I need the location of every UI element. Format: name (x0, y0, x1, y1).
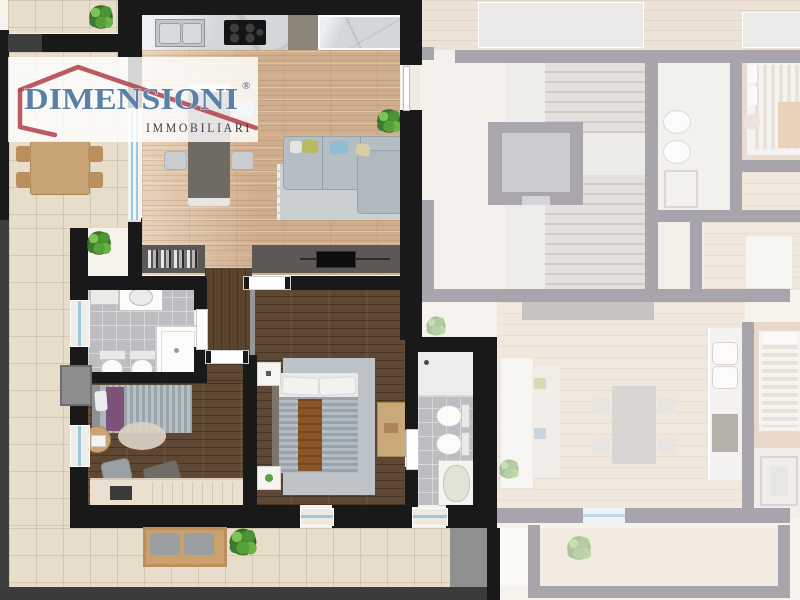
wall-segment (118, 0, 422, 15)
bed-pillow (94, 391, 107, 412)
faded-wall-segment (422, 47, 434, 60)
bookshelf (142, 245, 205, 273)
faded-potted-plant (497, 457, 521, 481)
faded-dining-table (612, 386, 656, 464)
elevator-door (522, 196, 550, 205)
master-desk (377, 402, 407, 457)
faded-toilet (663, 110, 691, 134)
faded-cushion (534, 428, 546, 439)
brand-name: DIMENSIONI (24, 81, 238, 116)
book (91, 435, 106, 447)
brand-subtitle: IMMOBILIARI (146, 120, 252, 135)
nightstand-decor (266, 371, 271, 376)
desk-object (384, 423, 398, 433)
window (70, 425, 90, 467)
sink-basin (159, 23, 181, 44)
toilet-tank (461, 404, 470, 428)
faded-wall-segment (455, 50, 800, 63)
bedroom1-floor (205, 364, 243, 383)
laptop (110, 486, 132, 500)
floor-plan-canvas: DIMENSIONI ® IMMOBILIARI (0, 0, 800, 600)
terrace-chair (88, 172, 103, 188)
bench-cushion (184, 533, 214, 555)
wall-segment (128, 218, 142, 285)
elevator-cab (502, 133, 570, 192)
faded-shower (664, 170, 698, 208)
dining-chair (164, 151, 187, 170)
bed-pillow (282, 376, 320, 396)
kitchen-counter-right (318, 15, 404, 50)
bidet-back (461, 432, 470, 456)
terrace-chair (88, 146, 103, 162)
door (406, 429, 419, 470)
wall-segment (446, 505, 497, 528)
books (148, 250, 198, 268)
faded-shower-br (760, 456, 798, 506)
bathtub-basin (443, 465, 470, 502)
brand-logo: DIMENSIONI ® IMMOBILIARI (8, 57, 258, 142)
wall-segment (405, 352, 418, 430)
faded-bed-tr-pillow (748, 65, 757, 83)
toilet (436, 404, 468, 426)
door-jamb (244, 277, 249, 289)
potted-plant (84, 228, 114, 258)
desk-dresser (90, 478, 243, 507)
bed-throw-brown (298, 399, 322, 471)
faded-potted-plant (424, 314, 448, 338)
faded-chair (593, 398, 610, 413)
window (412, 508, 448, 526)
gray-service-block (450, 528, 487, 587)
faded-desk-tr (778, 102, 800, 148)
faded-chair (658, 438, 675, 453)
faded-wall-segment (742, 322, 754, 520)
faded-potted-plant (564, 533, 594, 563)
door (196, 309, 208, 350)
wall-segment (473, 337, 497, 528)
terrace-table (30, 141, 90, 195)
terrace-chair (16, 146, 31, 162)
wall-segment (88, 372, 206, 383)
faded-wall-segment (497, 508, 583, 523)
wall-segment (405, 467, 418, 507)
bathroom2-washer-zone (418, 352, 473, 397)
faded-kitchen-sink (712, 366, 738, 389)
sofa-cushion (290, 141, 302, 153)
tv-screen (316, 251, 356, 268)
faded-tv-unit (522, 302, 654, 320)
nightstand (257, 362, 281, 386)
toilet-bowl (436, 405, 462, 427)
faded-window (583, 508, 625, 523)
potted-plant (226, 525, 260, 559)
bench-cushion (150, 533, 180, 555)
registered-mark: ® (242, 80, 250, 92)
faded-wall-segment (422, 200, 434, 290)
door-jamb (285, 277, 290, 289)
shower-drain (174, 348, 179, 353)
sink-basin (182, 23, 202, 44)
door (243, 276, 291, 290)
faded-chair (593, 438, 610, 453)
faded-bed-br (758, 330, 800, 432)
faded-bed-br-pillow (762, 333, 798, 344)
faded-wall-segment (690, 222, 702, 290)
wall-segment (400, 0, 422, 65)
dining-chair (231, 151, 254, 170)
wall-segment (243, 355, 257, 505)
outer-wall (8, 34, 42, 52)
faded-wall-segment (658, 210, 800, 222)
faded-bed-tr-pillow (748, 87, 757, 105)
faded-stool (744, 114, 760, 130)
shutter-box (60, 365, 92, 406)
sofa-cushion (329, 140, 348, 155)
terrace-chair (16, 172, 31, 188)
nightstand (257, 466, 281, 490)
bidet (436, 432, 468, 454)
wall-segment (88, 276, 206, 290)
terrace-bench (143, 527, 227, 567)
faded-chair (658, 398, 675, 413)
entry-door (402, 65, 420, 110)
faded-terrace-wall (528, 586, 790, 598)
bathtub (438, 460, 474, 506)
faded-wall-segment (742, 160, 800, 172)
wall-segment (487, 528, 500, 600)
sofa-cushion (301, 139, 319, 154)
faded-kitchen-sink (712, 342, 738, 365)
bed-pillow (319, 376, 357, 396)
door-leaf (403, 66, 410, 111)
faded-wardrobe-tr (742, 12, 800, 48)
door-jamb (206, 351, 211, 363)
radiator-lines (152, 482, 240, 504)
faded-cooktop (712, 414, 738, 452)
door (205, 350, 249, 364)
nightstand-plant (265, 474, 273, 482)
bed-headboard (272, 373, 279, 473)
faded-wall-segment (730, 63, 742, 213)
faded-bidet (663, 140, 691, 164)
outer-wall (0, 220, 9, 587)
drain-dot (424, 360, 429, 365)
partition-wall (250, 288, 255, 355)
faded-furniture-blob (745, 235, 793, 289)
faded-wall-segment (422, 289, 790, 302)
faded-bed-br-blanket (762, 345, 798, 427)
sofa-chaise (357, 150, 402, 214)
kitchen-sink (155, 19, 205, 47)
double-bed (272, 373, 358, 473)
sofa-cushion (355, 143, 371, 157)
bidet-bowl (436, 433, 462, 455)
wall-segment (400, 110, 422, 285)
kitchen-column (288, 15, 318, 50)
faded-shower-br-tray (770, 466, 788, 496)
round-rug (118, 422, 166, 450)
potted-plant (86, 2, 116, 32)
cooktop (224, 20, 266, 45)
faded-wall-segment (625, 508, 790, 523)
wall-segment (194, 278, 207, 310)
door-jamb (243, 351, 248, 363)
wall-segment (42, 34, 118, 52)
window (70, 300, 90, 347)
faded-cushion (534, 378, 546, 389)
light-gap (497, 528, 528, 586)
wall-segment (400, 276, 422, 340)
outer-wall (0, 587, 497, 600)
brand-logo-graphic: DIMENSIONI ® IMMOBILIARI (8, 57, 258, 142)
faded-wall-segment (645, 63, 658, 290)
window (300, 508, 334, 526)
faded-terrace-wall (778, 525, 790, 598)
faded-wardrobe (478, 2, 644, 48)
wall-segment (70, 505, 300, 528)
wall-segment (332, 505, 412, 528)
bed-throw-purple (106, 387, 124, 431)
sink-bowl (129, 288, 153, 306)
wall-segment (70, 345, 88, 365)
